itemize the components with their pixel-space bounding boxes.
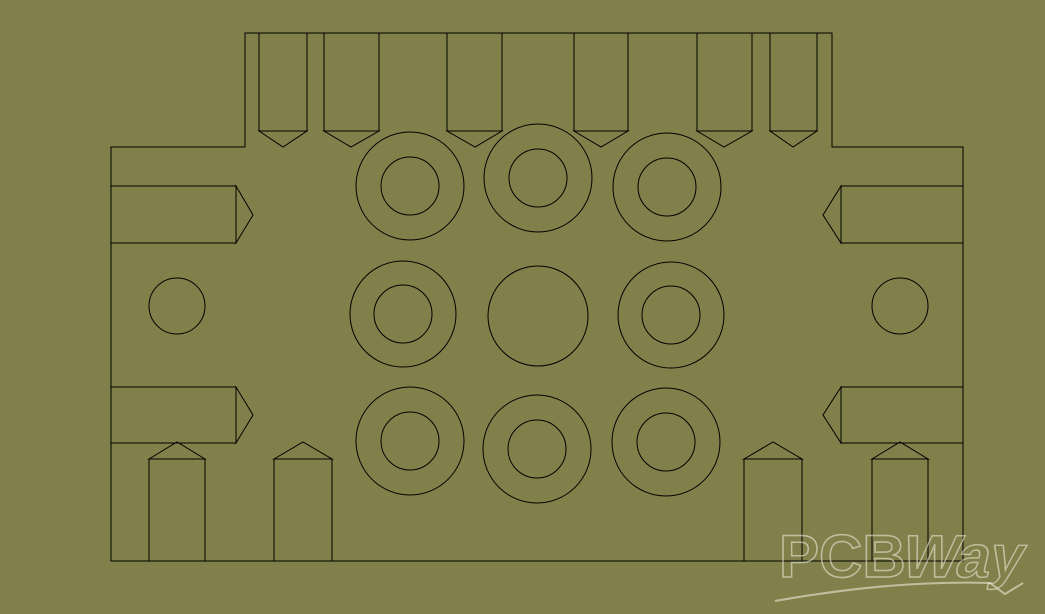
donut-pad-hole	[381, 157, 439, 215]
left-arrow-tip	[236, 387, 253, 443]
top-pin	[574, 33, 628, 131]
right-arrow-tip	[823, 186, 841, 243]
top-pin-tip	[574, 131, 628, 147]
watermark-text-way: Way	[896, 523, 1033, 590]
donut-pad-outer	[484, 124, 592, 232]
donut-pad-hole	[508, 420, 566, 478]
cad-viewer-canvas: PCB Way	[0, 0, 1045, 614]
bottom-pin	[274, 459, 332, 561]
right-arrow-tip	[823, 387, 841, 443]
top-pin	[770, 33, 817, 131]
top-pin-tip	[259, 131, 307, 147]
top-pin-tip	[697, 131, 752, 147]
right-arrow-pad	[841, 186, 963, 243]
top-pin-tip	[324, 131, 379, 147]
watermark-text-pcb: PCB	[779, 523, 906, 590]
donut-pad-hole	[509, 149, 567, 207]
component-body-outline	[111, 33, 963, 561]
left-arrow-pad	[111, 387, 236, 443]
left-arrow-pad	[111, 186, 236, 243]
top-pin	[697, 33, 752, 131]
right-arrow-pad	[841, 387, 963, 443]
top-pin-tip	[447, 131, 502, 147]
gerber-footprint-drawing: PCB Way	[0, 0, 1045, 614]
top-pin-tip	[770, 131, 817, 147]
side-hole	[149, 278, 205, 334]
bottom-pin	[149, 459, 205, 561]
donut-pad-hole	[638, 158, 696, 216]
center-hole	[488, 266, 588, 366]
footprint-outline-layer	[111, 33, 963, 561]
top-pin	[324, 33, 379, 131]
donut-pad-outer	[612, 388, 720, 496]
top-pin	[447, 33, 502, 131]
left-arrow-tip	[236, 186, 253, 243]
bottom-pin-tip	[872, 442, 928, 459]
side-hole	[872, 278, 928, 334]
donut-pad-outer	[483, 395, 591, 503]
donut-pad-hole	[374, 285, 432, 343]
donut-pad-outer	[356, 132, 464, 240]
donut-pad-outer	[356, 387, 464, 495]
bottom-pin-tip	[149, 442, 205, 459]
donut-pad-outer	[618, 262, 724, 368]
bottom-pin-tip	[744, 442, 802, 459]
donut-pad-outer	[350, 261, 456, 367]
donut-pad-hole	[381, 412, 439, 470]
bottom-pin-tip	[274, 442, 332, 459]
donut-pad-hole	[642, 286, 700, 344]
donut-pad-hole	[637, 413, 695, 471]
top-pin	[259, 33, 307, 131]
donut-pad-outer	[613, 133, 721, 241]
pcbway-watermark: PCB Way	[775, 523, 1033, 601]
